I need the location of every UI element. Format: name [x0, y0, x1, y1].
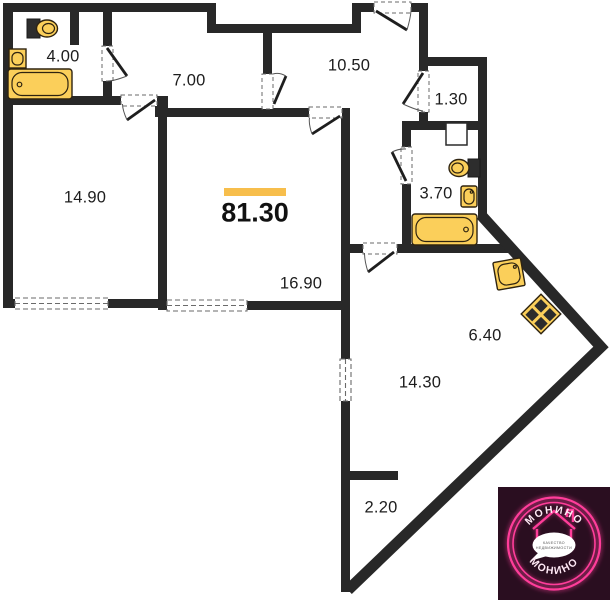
room-center-door-leaf: [312, 116, 340, 134]
room-label-storage-closet: 1.30: [435, 91, 468, 110]
total-area-accent-bar: [224, 188, 286, 196]
total-area-label: 81.30: [221, 198, 289, 229]
living-door-swing: [365, 253, 369, 272]
hall-7-door-swing: [273, 73, 286, 76]
room-label-entrance-hall: 10.50: [328, 57, 370, 76]
wall-east-central: [341, 108, 350, 592]
room-left-door-opening: [121, 95, 157, 106]
closet-bottom-wall: [402, 121, 487, 130]
logo-tagline-line2: НЕДВИЖИМОСТИ: [536, 546, 572, 550]
niche-divider-wall: [350, 471, 398, 480]
hall-7-door-leaf: [274, 76, 286, 104]
room-center-door-swing: [309, 118, 312, 134]
living-door-leaf: [368, 252, 394, 272]
washbasin-icon: [9, 49, 26, 68]
toilet-icon: [27, 19, 58, 38]
hall-7-door-opening: [262, 74, 273, 109]
room-label-living-zone: 14.30: [399, 374, 441, 393]
logo-tagline-line1: КАЧЕСТВО: [543, 541, 565, 545]
toilet-nook-stub: [70, 12, 79, 45]
entrance-door-swing: [407, 11, 411, 30]
room-label-niche: 2.20: [365, 499, 398, 518]
room-label-bathroom-top-left: 4.00: [47, 48, 80, 67]
bathtub-icon: [412, 214, 477, 245]
outer-wall-east-lower: [478, 57, 487, 218]
duct-niche: [446, 123, 467, 145]
room-label-hall-inner: 7.00: [173, 72, 206, 91]
room-label-kitchen-zone: 6.40: [469, 327, 502, 346]
floor-plan-drawing: КАЧЕСТВО НЕДВИЖИМОСТИ МОНИНО МОНИНО: [0, 0, 610, 600]
bathtub-icon: [8, 69, 72, 99]
entrance-door-opening: [374, 2, 411, 13]
kitchen-sink-icon: [493, 258, 525, 290]
washbasin-icon: [461, 186, 477, 207]
room-label-room-center: 16.90: [280, 275, 322, 294]
bath-4-door-opening: [102, 46, 113, 81]
toilet-icon: [449, 159, 480, 177]
entrance-door-leaf: [376, 11, 407, 30]
bathroom-west-wall: [402, 121, 411, 253]
outer-wall-top-left: [3, 3, 216, 12]
window-room-left: [15, 298, 108, 309]
outer-wall-top-mid: [207, 24, 360, 33]
wall-divider-left-center: [158, 108, 167, 308]
room-label-room-left: 14.90: [64, 189, 106, 208]
brand-logo: КАЧЕСТВО НЕДВИЖИМОСТИ МОНИНО МОНИНО: [498, 487, 610, 600]
room-label-bathroom-right: 3.70: [420, 185, 453, 204]
floor-plan: КАЧЕСТВО НЕДВИЖИМОСТИ МОНИНО МОНИНО 4.00…: [0, 0, 610, 600]
bathroom-door-opening: [401, 147, 412, 184]
closet-top-wall: [424, 57, 487, 66]
